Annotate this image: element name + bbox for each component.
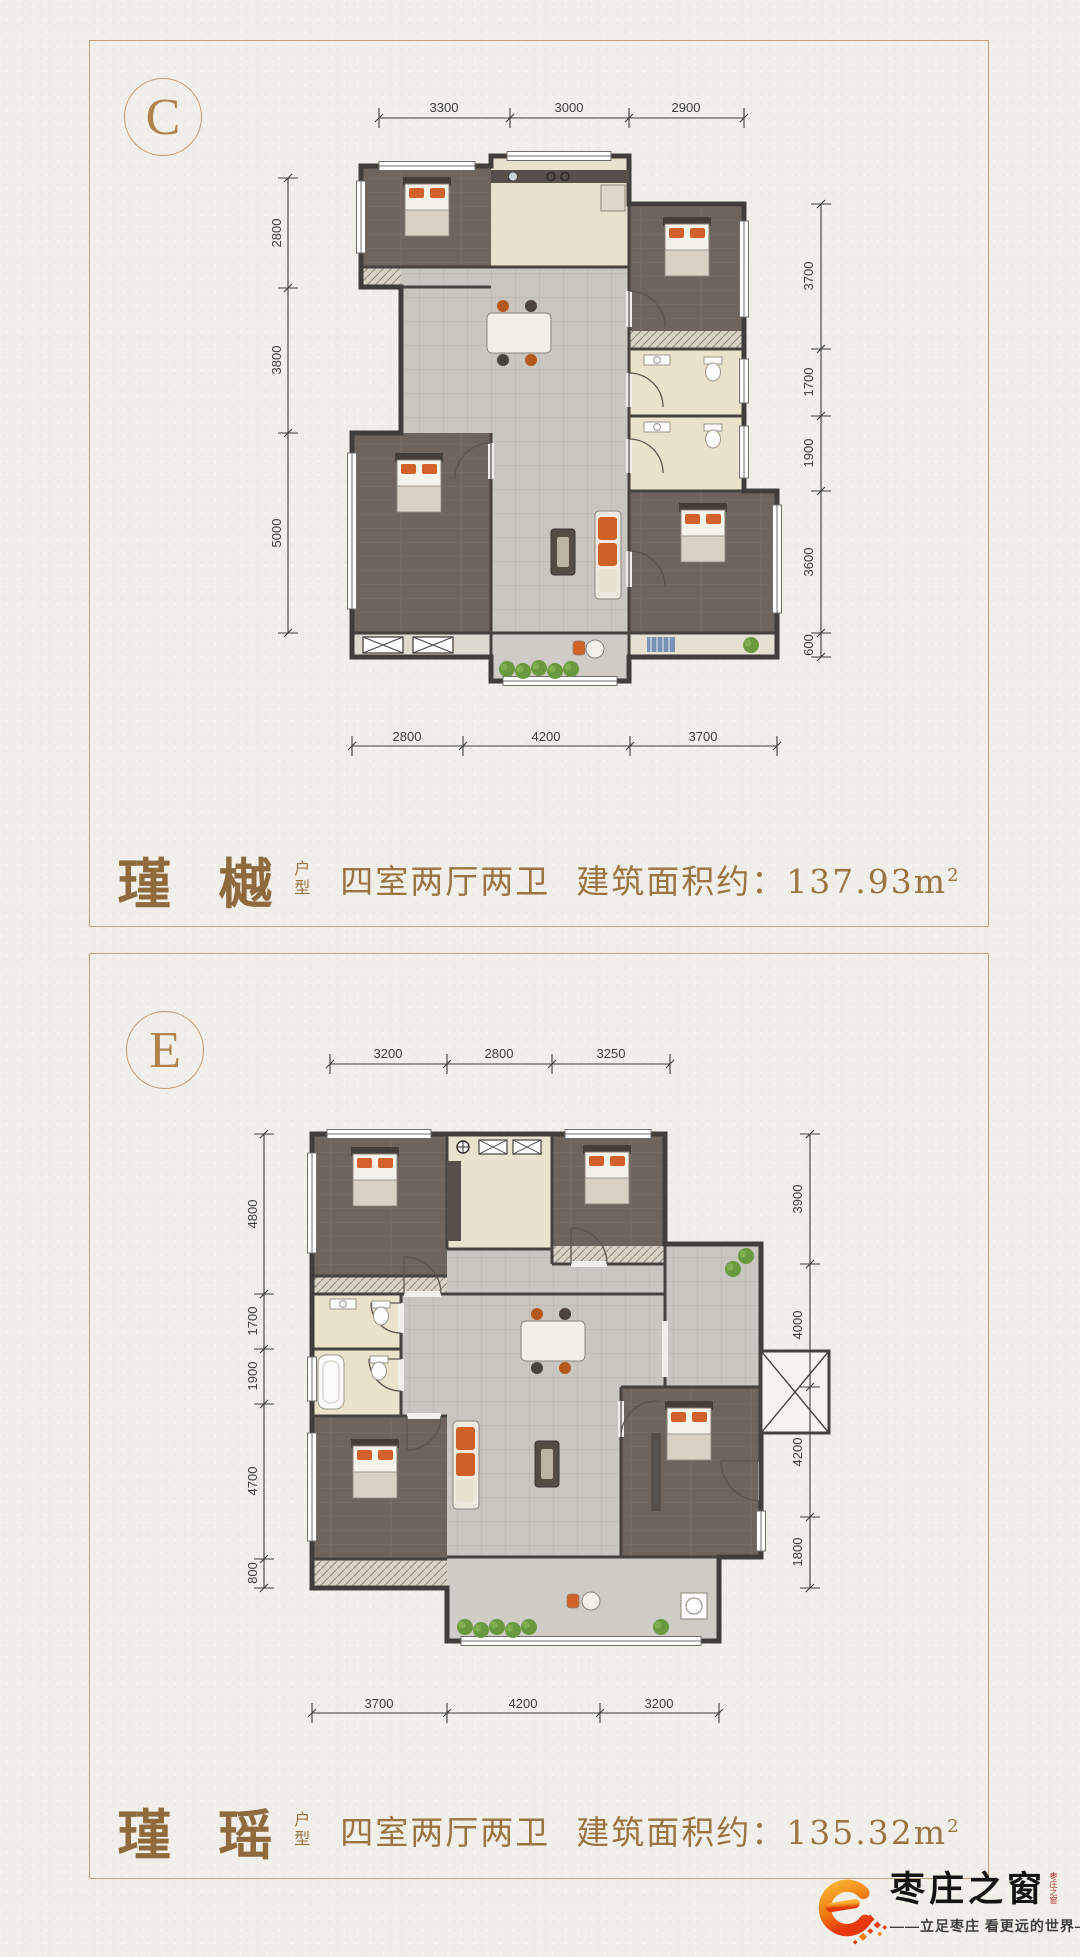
dim-label: 3700 — [365, 1696, 394, 1711]
dim-label: 1700 — [245, 1307, 260, 1336]
plan-e-badge: E — [126, 1011, 204, 1089]
dim-label: 3600 — [801, 548, 816, 577]
logo-e-swirl-icon — [806, 1870, 888, 1952]
plan-e-area-label: 建筑面积约： — [576, 1813, 786, 1852]
plan-c-type-label: 户型 — [288, 860, 312, 898]
plan-e-type-label: 户型 — [288, 1811, 312, 1849]
logo-tagline: ——立足枣庄 看更远的世界—— — [890, 1916, 1080, 1936]
floor-plan-c-drawing: 3300 3000 2900 2800 4200 3700 2800 3800 … — [251, 81, 851, 761]
dim-label: 3700 — [689, 729, 718, 744]
dim-label: 4200 — [532, 729, 561, 744]
plan-c-name: 瑾 樾 — [117, 840, 286, 919]
dim-label: 4000 — [790, 1311, 805, 1340]
plan-c-area-sup: 2 — [947, 865, 960, 886]
dim-label: 3300 — [430, 100, 459, 115]
dim-label: 1900 — [245, 1362, 260, 1391]
logo-brand-name: 枣庄之窗 — [890, 1868, 1046, 1912]
dim-label: 3200 — [374, 1046, 403, 1061]
plan-c-badge-letter: C — [146, 88, 181, 147]
panel-plan-c: C — [89, 40, 989, 927]
logo-seal-text: 枣庄之窗 — [1049, 1872, 1058, 1904]
logo-seal: 枣庄之窗 — [1049, 1872, 1057, 1906]
plan-e-badge-letter: E — [149, 1021, 181, 1080]
dim-label: 4200 — [509, 1696, 538, 1711]
dim-label: 2800 — [393, 729, 422, 744]
dim-label: 3800 — [269, 346, 284, 375]
floor-plan-e-drawing: 3200 2800 3250 3700 4200 3200 4800 1700 … — [241, 1041, 861, 1741]
flyer-page: C — [0, 0, 1080, 1957]
plan-e-name: 瑾 瑶 — [117, 1791, 286, 1870]
plan-c-rooms-text: 四室两厅两卫 — [340, 862, 550, 901]
dim-label: 1700 — [801, 368, 816, 397]
dim-label: 3900 — [790, 1185, 805, 1214]
dim-label: 5000 — [269, 519, 284, 548]
dim-label: 3200 — [645, 1696, 674, 1711]
plan-c-badge: C — [124, 78, 202, 156]
dim-label: 3250 — [597, 1046, 626, 1061]
panel-plan-e: E — [89, 953, 989, 1879]
plan-e-spec: 四室两厅两卫建筑面积约：135.32m2 — [340, 1806, 960, 1854]
dim-label: 2800 — [269, 219, 284, 248]
plan-c-area-value: 137.93m — [786, 862, 947, 901]
plan-e-title: 瑾 瑶 户型 四室两厅两卫建筑面积约：135.32m2 — [130, 1780, 948, 1880]
dim-label: 1800 — [790, 1538, 805, 1567]
plan-e-area-sup: 2 — [947, 1816, 960, 1837]
dim-label: 3000 — [555, 100, 584, 115]
dim-label: 600 — [801, 634, 816, 656]
dim-label: 1900 — [801, 439, 816, 468]
plan-c-spec: 四室两厅两卫建筑面积约：137.93m2 — [340, 855, 960, 903]
plan-e-rooms-text: 四室两厅两卫 — [340, 1813, 550, 1852]
dim-label: 2800 — [485, 1046, 514, 1061]
dim-label: 4700 — [245, 1467, 260, 1496]
dim-label: 800 — [245, 1562, 260, 1584]
dim-label: 4800 — [245, 1200, 260, 1229]
plan-e-area-value: 135.32m — [786, 1813, 947, 1852]
plan-c-area-label: 建筑面积约： — [576, 862, 786, 901]
dim-label: 2900 — [672, 100, 701, 115]
site-logo: 枣庄之窗 枣庄之窗 ——立足枣庄 看更远的世界—— — [806, 1868, 1080, 1957]
plan-c-title: 瑾 樾 户型 四室两厅两卫建筑面积约：137.93m2 — [130, 829, 948, 929]
plan-e-elevator — [761, 1351, 829, 1433]
dim-label: 4200 — [790, 1438, 805, 1467]
logo-text-block: 枣庄之窗 枣庄之窗 ——立足枣庄 看更远的世界—— — [890, 1868, 1080, 1936]
dim-label: 3700 — [801, 262, 816, 291]
